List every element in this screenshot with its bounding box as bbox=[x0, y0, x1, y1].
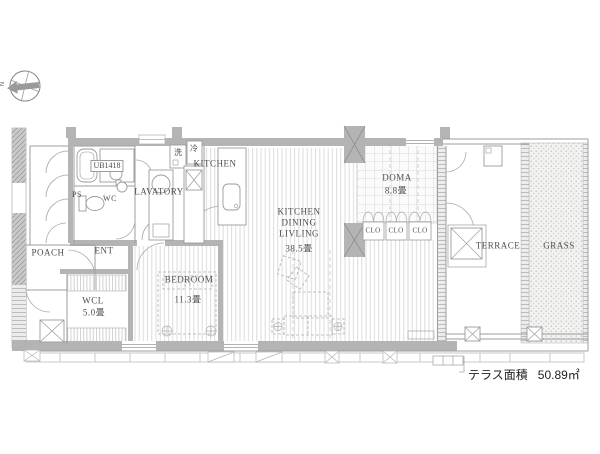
label-doma-size: 8.8畳 bbox=[385, 187, 407, 196]
label-wc: WC bbox=[103, 195, 117, 203]
label-clo-2: CLO bbox=[389, 228, 404, 235]
wcl-shelf-top bbox=[67, 275, 126, 291]
terrace-area-label: テラス面積 bbox=[468, 368, 528, 382]
label-clo-3: CLO bbox=[413, 228, 428, 235]
bedroom-floor bbox=[134, 246, 218, 341]
label-bedroom: BEDROOM bbox=[165, 276, 214, 285]
terrace-area-value: 50.89㎡ bbox=[538, 368, 580, 382]
label-kdl-line3: LIVLING bbox=[279, 230, 319, 239]
compass-north-label: N bbox=[0, 82, 6, 86]
left-exterior-strip bbox=[12, 128, 26, 348]
footer-step-symbol bbox=[433, 356, 464, 372]
wc-basin-icon bbox=[117, 182, 127, 192]
column-stub-2 bbox=[172, 127, 182, 138]
doma-tile-floor bbox=[357, 143, 437, 223]
wall-top bbox=[68, 138, 443, 146]
terrace-window-band bbox=[437, 146, 446, 341]
compass-icon bbox=[6, 70, 42, 103]
lavatory-cabinet bbox=[153, 224, 169, 237]
label-terrace: TERRACE bbox=[476, 242, 521, 251]
label-ent: ENT bbox=[95, 247, 114, 256]
terrace-area-annotation: テラス面積50.89㎡ bbox=[468, 366, 580, 383]
deck-strip bbox=[24, 350, 584, 363]
label-grass: GRASS bbox=[543, 242, 575, 251]
label-fridge: 冷 bbox=[190, 145, 198, 153]
floor-plan: PS POACH ENT UB1418 WC LAVATORY 洗 冷 KITC… bbox=[0, 0, 600, 454]
label-ub1418: UB1418 bbox=[90, 160, 123, 172]
living-east-floor bbox=[357, 240, 437, 341]
label-kitchen: KITCHEN bbox=[194, 160, 237, 169]
wall-bedroom-kdl bbox=[218, 240, 223, 346]
column-stub-3 bbox=[440, 127, 450, 139]
label-kdl-line1: KITCHEN bbox=[278, 208, 321, 217]
label-bedroom-size: 11.3畳 bbox=[175, 296, 202, 305]
label-ps: PS bbox=[72, 191, 82, 199]
label-clo-1: CLO bbox=[366, 228, 381, 235]
toilet-icon bbox=[86, 197, 104, 211]
terrace-grass-divider bbox=[521, 143, 529, 343]
label-washer: 洗 bbox=[174, 149, 182, 157]
label-kdl-line2: DINING bbox=[282, 219, 317, 228]
label-wcl: WCL bbox=[82, 297, 104, 306]
column-stub-1 bbox=[66, 127, 76, 138]
label-lavatory: LAVATORY bbox=[134, 188, 184, 197]
label-kdl-size: 38.5畳 bbox=[285, 245, 312, 254]
wall-wcl-bedroom bbox=[128, 240, 133, 346]
right-edge-strip bbox=[583, 143, 588, 343]
label-poach: POACH bbox=[31, 249, 64, 258]
label-doma: DOMA bbox=[382, 174, 412, 183]
porch-column bbox=[40, 320, 64, 342]
label-wcl-size: 5.0畳 bbox=[83, 309, 105, 318]
